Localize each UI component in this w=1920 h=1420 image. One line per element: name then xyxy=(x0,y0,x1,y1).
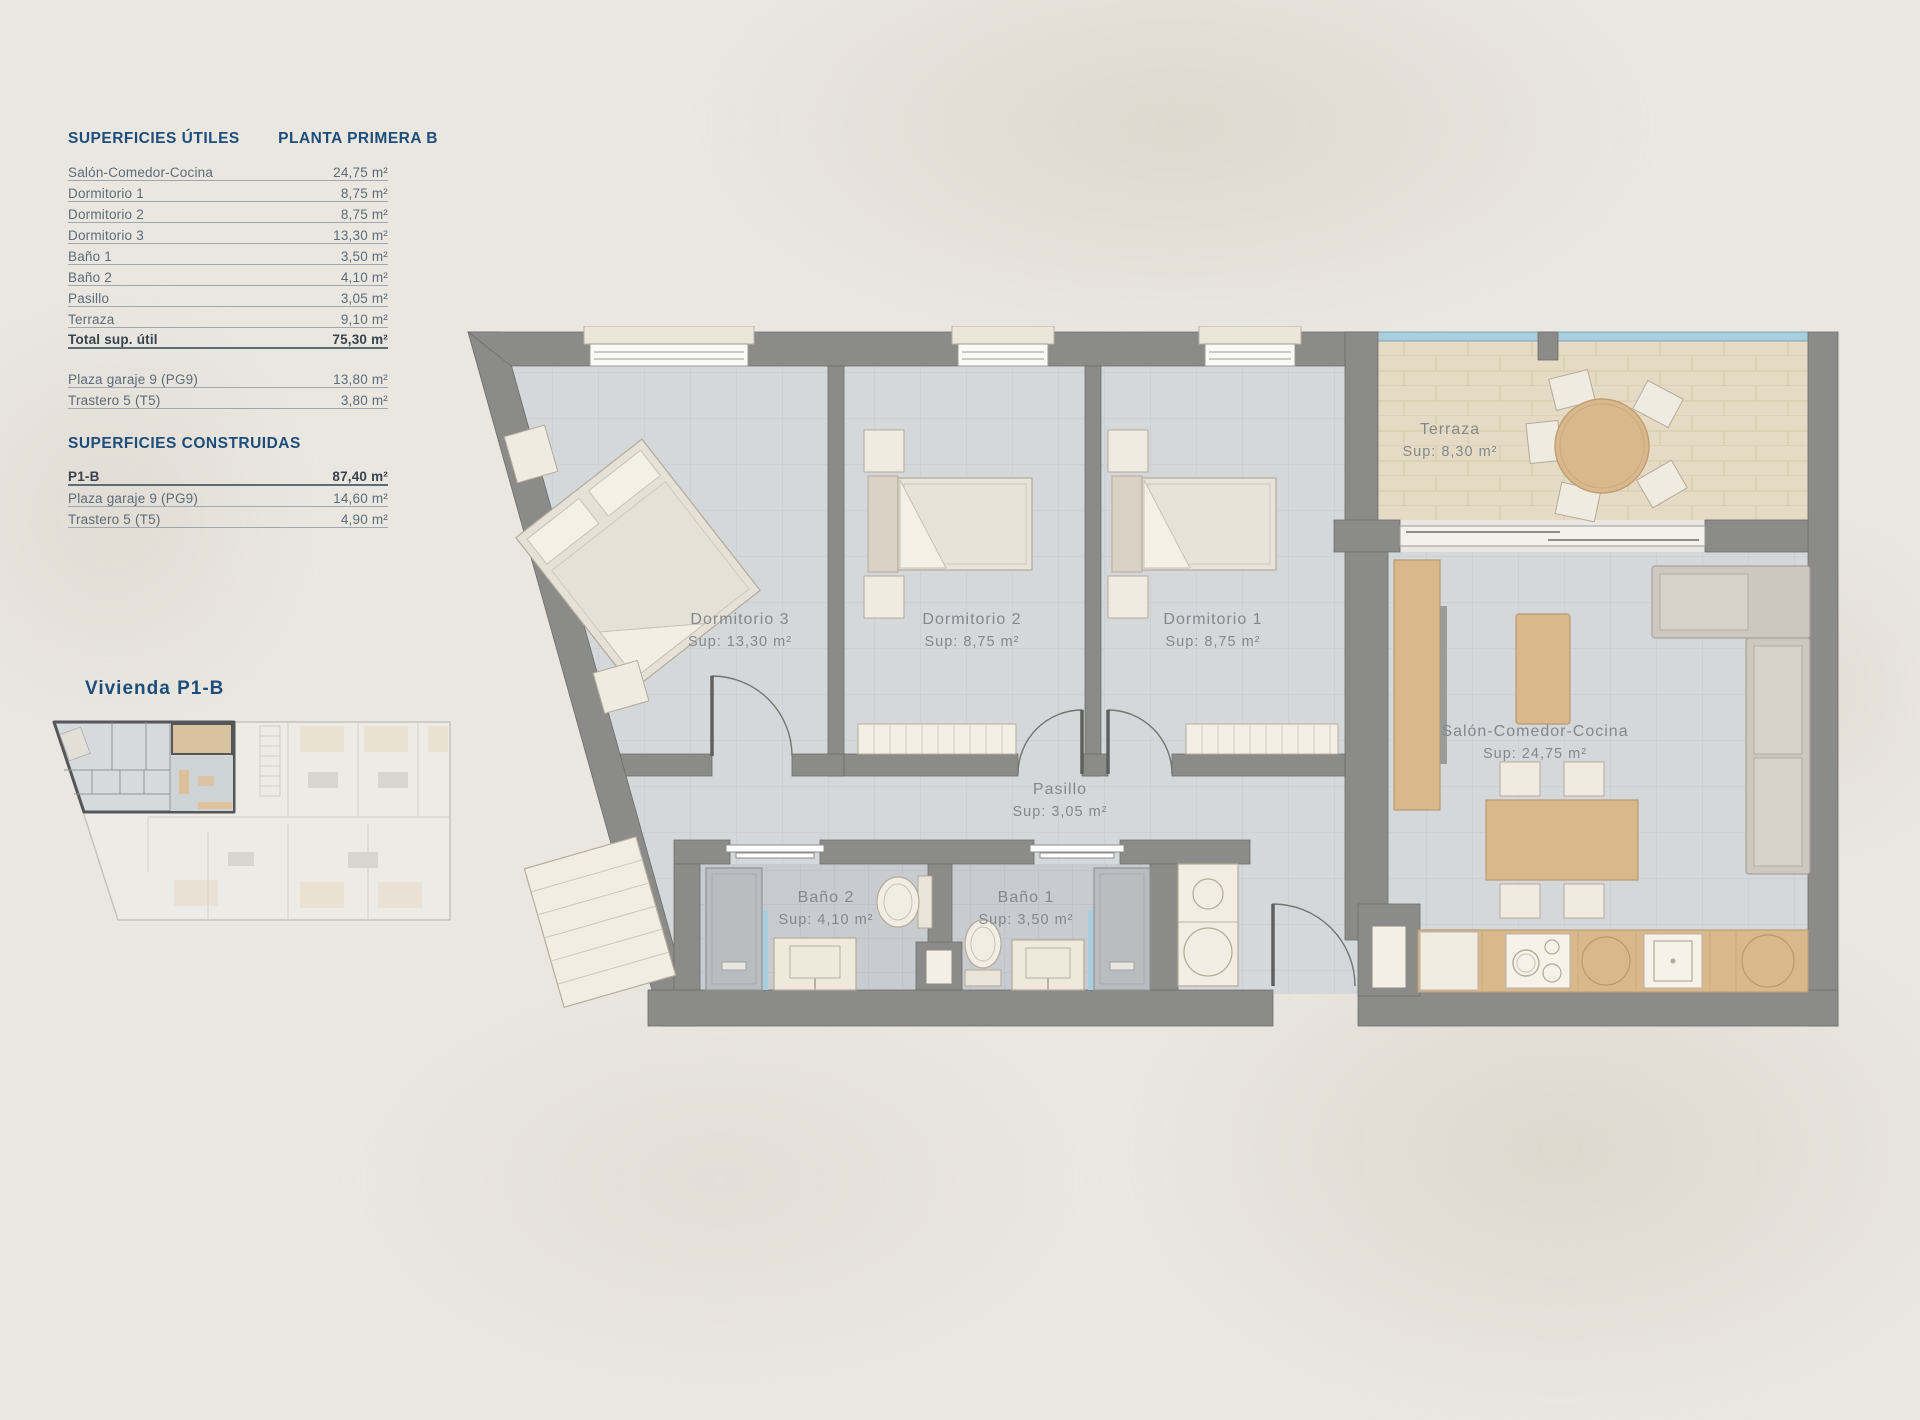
chair-icon xyxy=(1564,884,1604,918)
row-label: Dormitorio 1 xyxy=(68,186,144,201)
nightstand-icon xyxy=(864,430,904,472)
table-row: Pasillo3,05 m² xyxy=(68,286,388,307)
spacer xyxy=(68,349,388,367)
tv-unit-icon xyxy=(1394,560,1447,810)
row-value: 3,50 m² xyxy=(341,249,388,264)
bath2-left-wall xyxy=(674,864,700,990)
terrace-sliding-door xyxy=(1400,526,1705,546)
toilet-icon xyxy=(965,920,1001,986)
row-label: Terraza xyxy=(68,312,114,327)
table-row: Trastero 5 (T5)3,80 m² xyxy=(68,388,388,409)
single-bed-icon xyxy=(1112,476,1276,572)
table-row: Plaza garaje 9 (PG9)13,80 m² xyxy=(68,367,388,388)
bath-top-wall xyxy=(1120,840,1250,864)
row-label: Plaza garaje 9 (PG9) xyxy=(68,491,198,506)
row-value: 14,60 m² xyxy=(333,491,388,506)
utiles-rows: Salón-Comedor-Cocina24,75 m²Dormitorio 1… xyxy=(68,160,388,349)
window-dorm3 xyxy=(584,326,754,366)
bedroom-bottom-wall xyxy=(620,754,712,776)
row-value: 3,80 m² xyxy=(341,393,388,408)
hob-icon xyxy=(1506,934,1570,988)
table-row: Trastero 5 (T5)4,90 m² xyxy=(68,507,388,528)
row-label: Baño 2 xyxy=(68,270,112,285)
room-label: Pasillo xyxy=(1033,781,1087,798)
unit-table xyxy=(198,776,214,786)
nightstand-icon xyxy=(1108,430,1148,472)
table-row: Dormitorio 28,75 m² xyxy=(68,202,388,223)
chair-icon xyxy=(1500,884,1540,918)
single-bed-icon xyxy=(868,476,1032,572)
bedroom-bottom-wall xyxy=(1172,754,1345,776)
row-label: Total sup. útil xyxy=(68,332,158,347)
dorm1-terrace-wall xyxy=(1345,332,1378,552)
row-value: 13,30 m² xyxy=(333,228,388,243)
row-label: Pasillo xyxy=(68,291,109,306)
table-row: Terraza9,10 m² xyxy=(68,307,388,328)
row-label: Baño 1 xyxy=(68,249,112,264)
bedroom-bottom-wall xyxy=(792,754,844,776)
tv-icon xyxy=(1440,606,1447,764)
entry-niche xyxy=(1372,926,1406,988)
row-label: Trastero 5 (T5) xyxy=(68,393,161,408)
window-dorm1 xyxy=(1199,326,1301,366)
washer-dryer-icon xyxy=(1178,864,1238,986)
table-header: SUPERFICIES ÚTILES PLANTA PRIMERA B xyxy=(68,130,438,148)
room-sup: Sup: 4,10 m² xyxy=(778,912,873,928)
shower-icon xyxy=(1088,868,1150,990)
construidas-title: SUPERFICIES CONSTRUIDAS xyxy=(68,435,388,453)
sink-icon xyxy=(1644,934,1702,988)
room-label: Baño 1 xyxy=(998,889,1055,906)
row-value: 8,75 m² xyxy=(341,207,388,222)
watercolor-texture xyxy=(360,980,1080,1380)
room-label: Dormitorio 3 xyxy=(690,611,789,628)
shower-icon xyxy=(706,868,768,990)
row-label: Dormitorio 3 xyxy=(68,228,144,243)
utiles-title: SUPERFICIES ÚTILES xyxy=(68,130,240,148)
coffee-table-icon xyxy=(1516,614,1570,724)
terrace-glass-railing xyxy=(1365,332,1808,341)
key-plan xyxy=(48,712,458,940)
surface-table-panel: SUPERFICIES ÚTILES PLANTA PRIMERA B Saló… xyxy=(68,130,388,528)
table-row: P1-B87,40 m² xyxy=(68,465,388,486)
table-row: Salón-Comedor-Cocina24,75 m² xyxy=(68,160,388,181)
shower-glass xyxy=(1088,910,1093,990)
table-row: Plaza garaje 9 (PG9)14,60 m² xyxy=(68,486,388,507)
bottom-wall-left xyxy=(648,990,1273,1026)
room-label: Salón-Comedor-Cocina xyxy=(1441,723,1628,740)
row-value: 4,90 m² xyxy=(341,512,388,527)
toilet-icon xyxy=(877,876,932,928)
table-row: Dormitorio 18,75 m² xyxy=(68,181,388,202)
room-sup: Sup: 24,75 m² xyxy=(1483,746,1587,762)
room-label: Terraza xyxy=(1420,421,1480,438)
washbasin-icon xyxy=(774,938,856,990)
row-label: Salón-Comedor-Cocina xyxy=(68,165,213,180)
row-value: 87,40 m² xyxy=(332,469,388,484)
right-wall xyxy=(1808,332,1838,1026)
bath-top-wall xyxy=(820,840,1034,864)
row-label: Plaza garaje 9 (PG9) xyxy=(68,372,198,387)
room-sup: Sup: 8,75 m² xyxy=(924,634,1019,650)
highlighted-unit xyxy=(54,722,234,812)
row-value: 75,30 m² xyxy=(332,332,388,347)
table-row: Baño 24,10 m² xyxy=(68,265,388,286)
terrace-bottom-wall-right xyxy=(1705,520,1808,552)
closet-icon xyxy=(858,724,1016,754)
watercolor-texture xyxy=(700,0,1650,340)
row-label: Trastero 5 (T5) xyxy=(68,512,161,527)
kitchen-counter-icon xyxy=(1418,930,1808,992)
room-sup: Sup: 3,50 m² xyxy=(978,912,1073,928)
row-value: 13,80 m² xyxy=(333,372,388,387)
washbasin-icon xyxy=(1012,940,1084,990)
closet-icon xyxy=(1186,724,1338,754)
construidas-rows: P1-B87,40 m²Plaza garaje 9 (PG9)14,60 m²… xyxy=(68,465,388,528)
unit-terrace xyxy=(172,724,232,754)
chair-icon xyxy=(1564,762,1604,796)
salon-divider-wall xyxy=(1345,552,1388,940)
room-label: Baño 2 xyxy=(798,889,855,906)
terrace-bottom-wall-left xyxy=(1334,520,1400,552)
row-value: 4,10 m² xyxy=(341,270,388,285)
room-sup: Sup: 13,30 m² xyxy=(688,634,792,650)
room-label: Dormitorio 1 xyxy=(1163,611,1262,628)
terrace-pillar xyxy=(1538,332,1558,360)
row-label: P1-B xyxy=(68,469,100,484)
dorm3-dorm2-wall xyxy=(828,366,844,776)
room-sup: Sup: 8,30 m² xyxy=(1402,444,1497,460)
nightstand-icon xyxy=(864,576,904,618)
planta-subtitle: PLANTA PRIMERA B xyxy=(278,130,438,148)
table-row: Baño 13,50 m² xyxy=(68,244,388,265)
key-plan-svg xyxy=(48,712,458,940)
unit-kitchen xyxy=(198,802,232,809)
mini-plan-title: Vivienda P1-B xyxy=(85,678,224,700)
row-value: 24,75 m² xyxy=(333,165,388,180)
room-sup: Sup: 8,75 m² xyxy=(1165,634,1260,650)
row-value: 3,05 m² xyxy=(341,291,388,306)
dorm2-dorm1-wall xyxy=(1085,366,1101,776)
table-row: Dormitorio 313,30 m² xyxy=(68,223,388,244)
row-value: 9,10 m² xyxy=(341,312,388,327)
room-sup: Sup: 3,05 m² xyxy=(1012,804,1107,820)
floor-plan: Dormitorio 3 Sup: 13,30 m² Dormitorio 2 … xyxy=(460,326,1840,1032)
nightstand-icon xyxy=(1108,576,1148,618)
window-dorm2 xyxy=(952,326,1054,366)
table-row: Total sup. útil75,30 m² xyxy=(68,328,388,349)
fridge-icon xyxy=(1420,932,1478,990)
chair-icon xyxy=(1500,762,1540,796)
bath-top-wall xyxy=(674,840,730,864)
bedroom-bottom-wall xyxy=(1082,754,1108,776)
room-label: Dormitorio 2 xyxy=(922,611,1021,628)
shower-glass xyxy=(763,910,768,990)
unit-tv-unit xyxy=(179,770,189,794)
row-label: Dormitorio 2 xyxy=(68,207,144,222)
utiles-annex-rows: Plaza garaje 9 (PG9)13,80 m²Trastero 5 (… xyxy=(68,367,388,409)
row-value: 8,75 m² xyxy=(341,186,388,201)
floor-plan-svg: Dormitorio 3 Sup: 13,30 m² Dormitorio 2 … xyxy=(460,326,1840,1032)
utility-left-wall xyxy=(1150,864,1178,990)
bottom-wall-right xyxy=(1358,990,1838,1026)
bedroom-bottom-wall xyxy=(844,754,1018,776)
bath-niche xyxy=(926,950,952,984)
